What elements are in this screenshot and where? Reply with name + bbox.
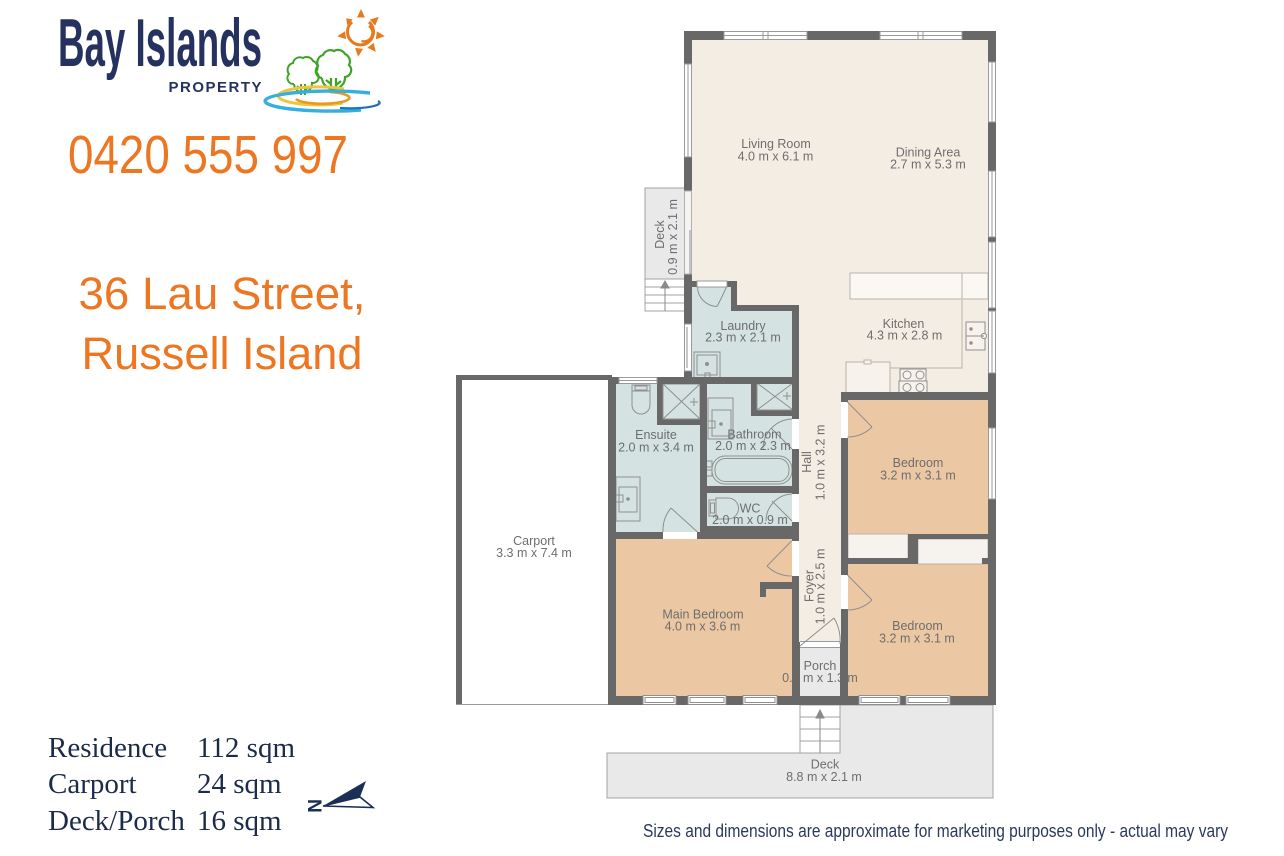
svg-text:0420 555 997: 0420 555 997	[68, 125, 348, 185]
svg-text:Porch: Porch	[804, 659, 837, 673]
svg-text:Residence: Residence	[48, 732, 167, 764]
svg-text:Deck/Porch: Deck/Porch	[48, 805, 185, 837]
svg-text:0.9 m x 2.1 m: 0.9 m x 2.1 m	[666, 199, 680, 275]
svg-text:16 sqm: 16 sqm	[197, 805, 282, 837]
svg-text:N: N	[303, 799, 324, 813]
svg-text:2.3 m x 2.1 m: 2.3 m x 2.1 m	[705, 331, 781, 345]
svg-text:3.2 m x 3.1 m: 3.2 m x 3.1 m	[880, 469, 956, 483]
svg-text:Bay Islands: Bay Islands	[58, 5, 262, 81]
svg-text:Russell Island: Russell Island	[82, 328, 363, 379]
svg-text:PROPERTY: PROPERTY	[168, 79, 263, 96]
svg-text:2.0 m x 0.9 m: 2.0 m x 0.9 m	[712, 513, 788, 527]
svg-text:112 sqm: 112 sqm	[197, 732, 295, 764]
svg-text:Deck: Deck	[653, 220, 667, 249]
svg-text:2.0 m x 3.4 m: 2.0 m x 3.4 m	[618, 441, 694, 455]
svg-text:Carport: Carport	[48, 768, 137, 800]
svg-text:2.0 m x 2.3 m: 2.0 m x 2.3 m	[715, 439, 791, 453]
svg-text:Hall: Hall	[800, 451, 814, 473]
svg-text:4.0 m x 6.1 m: 4.0 m x 6.1 m	[738, 150, 814, 164]
svg-text:1.0 m x 3.2 m: 1.0 m x 3.2 m	[814, 425, 828, 501]
svg-text:8.8 m x 2.1 m: 8.8 m x 2.1 m	[786, 770, 862, 784]
svg-text:2.7 m x 5.3 m: 2.7 m x 5.3 m	[890, 158, 966, 172]
svg-text:3.3 m x 7.4 m: 3.3 m x 7.4 m	[496, 546, 572, 560]
svg-text:24 sqm: 24 sqm	[197, 768, 282, 800]
svg-text:3.2 m x 3.1 m: 3.2 m x 3.1 m	[879, 632, 955, 646]
svg-text:36 Lau Street,: 36 Lau Street,	[79, 268, 366, 319]
svg-text:4.0 m x 3.6 m: 4.0 m x 3.6 m	[665, 620, 741, 634]
svg-text:1.0 m x 2.5 m: 1.0 m x 2.5 m	[814, 549, 828, 625]
svg-text:4.3 m x 2.8 m: 4.3 m x 2.8 m	[867, 329, 943, 343]
svg-text:Sizes and dimensions are appro: Sizes and dimensions are approximate for…	[643, 821, 1228, 841]
